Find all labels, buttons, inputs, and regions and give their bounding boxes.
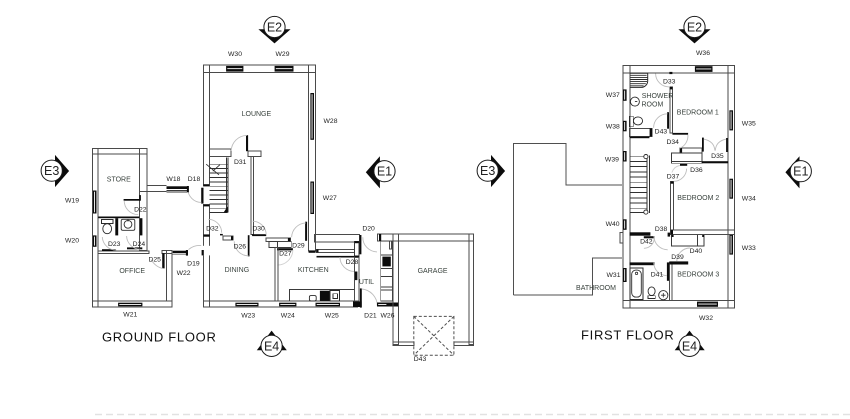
svg-text:E3: E3 [44, 164, 59, 178]
svg-text:W34: W34 [742, 195, 756, 202]
svg-text:D30: D30 [252, 225, 265, 232]
svg-text:W35: W35 [742, 120, 756, 127]
svg-text:W33: W33 [742, 245, 756, 252]
svg-text:D34: D34 [666, 139, 679, 146]
svg-text:LOUNGE: LOUNGE [242, 111, 272, 118]
svg-text:D39: D39 [671, 254, 684, 261]
svg-text:D29: D29 [292, 242, 305, 249]
svg-text:KITCHEN: KITCHEN [298, 267, 329, 274]
svg-text:E4: E4 [264, 339, 279, 353]
svg-text:D33: D33 [663, 79, 676, 86]
svg-text:D24: D24 [133, 241, 146, 248]
svg-text:W31: W31 [607, 272, 621, 279]
svg-text:W21: W21 [123, 311, 137, 318]
svg-text:BEDROOM 3: BEDROOM 3 [677, 272, 719, 279]
svg-text:D25: D25 [148, 256, 161, 263]
svg-text:BEDROOM 1: BEDROOM 1 [677, 110, 719, 117]
svg-text:E4: E4 [682, 339, 697, 353]
svg-text:W39: W39 [605, 157, 619, 164]
svg-text:SHOWER: SHOWER [642, 93, 674, 100]
svg-text:W19: W19 [65, 198, 79, 205]
svg-text:OFFICE: OFFICE [119, 268, 145, 275]
svg-text:D37: D37 [667, 174, 680, 181]
svg-text:D20: D20 [362, 225, 375, 232]
svg-text:E2: E2 [267, 21, 282, 35]
svg-text:D43: D43 [655, 128, 668, 135]
svg-text:W29: W29 [276, 51, 290, 58]
svg-text:E3: E3 [480, 164, 495, 178]
svg-text:D26: D26 [234, 243, 247, 250]
svg-text:W40: W40 [606, 221, 620, 228]
svg-text:D42: D42 [640, 238, 653, 245]
svg-text:UTIL: UTIL [359, 279, 374, 286]
svg-text:D41: D41 [651, 272, 664, 279]
svg-text:D27: D27 [279, 250, 292, 257]
svg-text:D43: D43 [414, 356, 427, 363]
svg-text:W38: W38 [606, 124, 620, 131]
svg-text:D22: D22 [134, 207, 147, 214]
svg-text:D28: D28 [346, 259, 359, 266]
svg-text:W20: W20 [65, 238, 79, 245]
svg-text:W22: W22 [177, 270, 191, 277]
svg-text:D40: D40 [690, 248, 703, 255]
svg-text:DINING: DINING [225, 267, 250, 274]
svg-text:E2: E2 [687, 21, 702, 35]
svg-text:GARAGE: GARAGE [418, 268, 448, 275]
svg-text:GROUND FLOOR: GROUND FLOOR [102, 330, 217, 345]
svg-text:ROOM: ROOM [642, 101, 664, 108]
svg-text:D35: D35 [711, 153, 724, 160]
svg-text:W18: W18 [166, 176, 180, 183]
svg-text:W25: W25 [325, 313, 339, 320]
svg-text:STORE: STORE [107, 176, 131, 183]
svg-text:W26: W26 [381, 312, 395, 319]
svg-text:D23: D23 [108, 241, 121, 248]
svg-text:E1: E1 [377, 165, 392, 179]
svg-text:D38: D38 [655, 226, 668, 233]
svg-text:W23: W23 [241, 313, 255, 320]
svg-text:W24: W24 [281, 313, 295, 320]
svg-text:D18: D18 [188, 176, 201, 183]
svg-text:W37: W37 [606, 92, 620, 99]
svg-text:W27: W27 [323, 195, 337, 202]
svg-text:W28: W28 [324, 118, 338, 125]
svg-text:D19: D19 [187, 261, 200, 268]
svg-text:E1: E1 [793, 165, 808, 179]
svg-text:W30: W30 [228, 51, 242, 58]
svg-text:D36: D36 [690, 167, 703, 174]
svg-text:W36: W36 [696, 50, 710, 57]
svg-text:D21: D21 [364, 312, 377, 319]
svg-text:FIRST FLOOR: FIRST FLOOR [581, 328, 674, 343]
svg-text:D32: D32 [206, 226, 219, 233]
svg-text:D31: D31 [234, 159, 247, 166]
svg-text:BEDROOM 2: BEDROOM 2 [677, 195, 719, 202]
svg-text:BATHROOM: BATHROOM [576, 285, 616, 292]
svg-text:W32: W32 [699, 315, 713, 322]
